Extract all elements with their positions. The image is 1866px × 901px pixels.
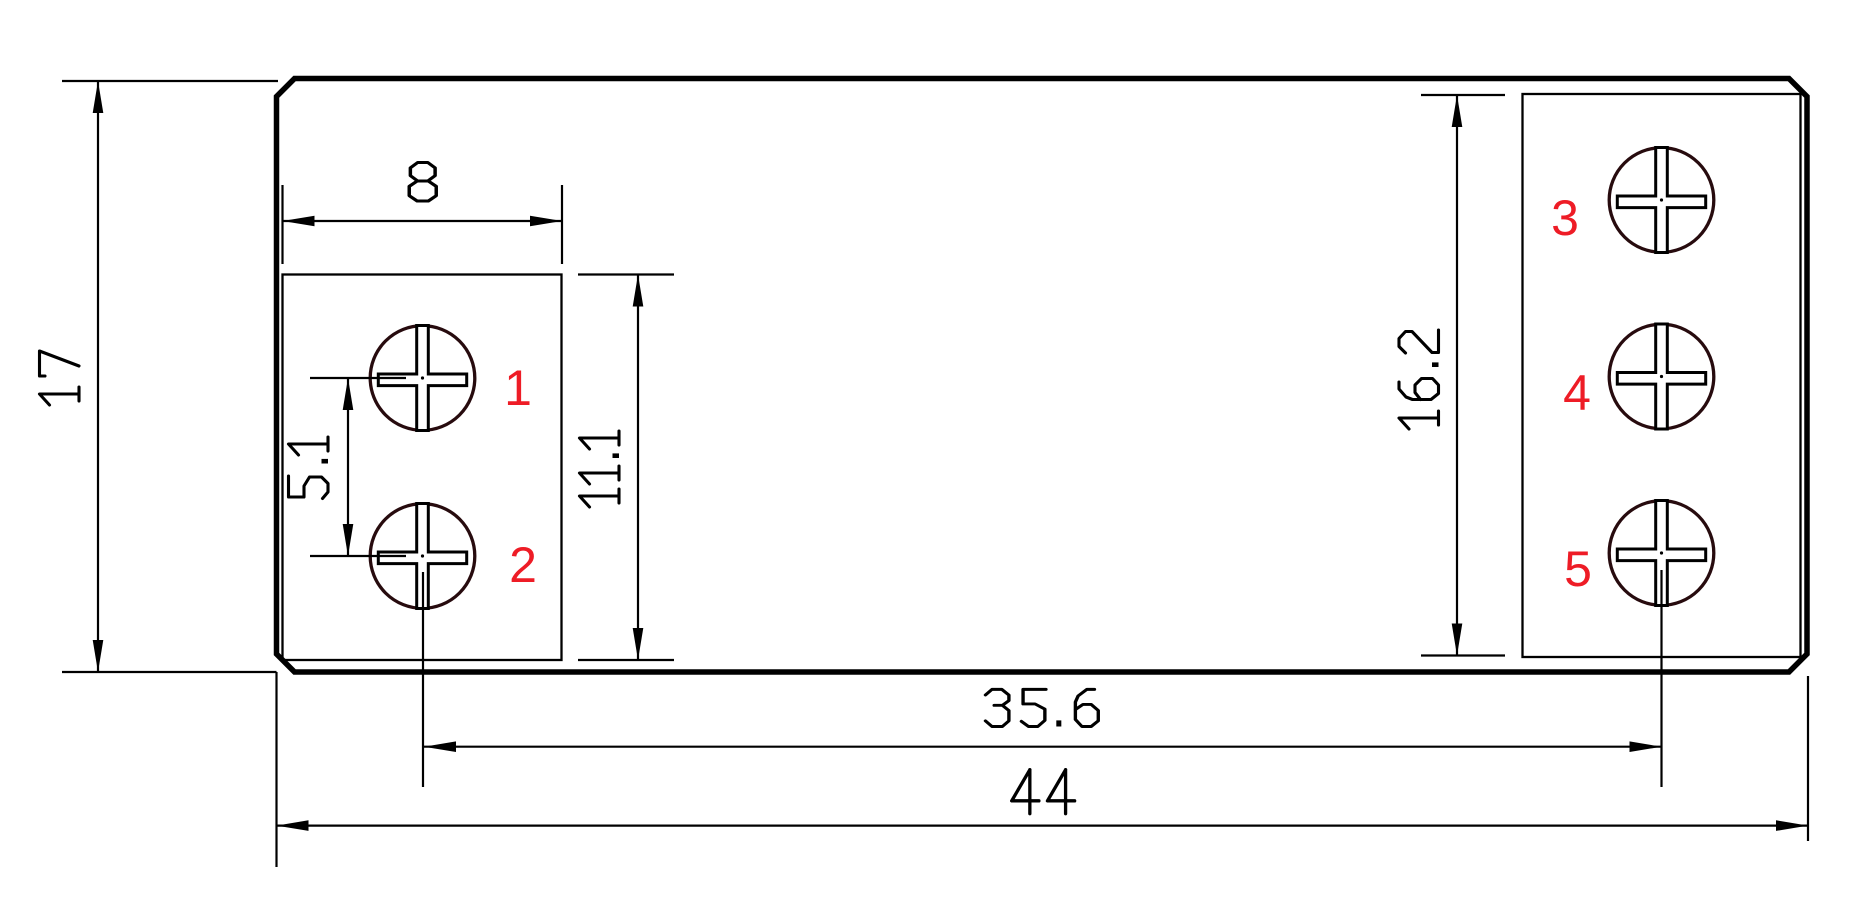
- svg-text:3: 3: [1551, 190, 1579, 246]
- svg-text:5: 5: [1564, 541, 1592, 597]
- svg-text:2: 2: [509, 537, 537, 593]
- svg-text:4: 4: [1563, 365, 1591, 421]
- svg-text:1: 1: [504, 360, 532, 416]
